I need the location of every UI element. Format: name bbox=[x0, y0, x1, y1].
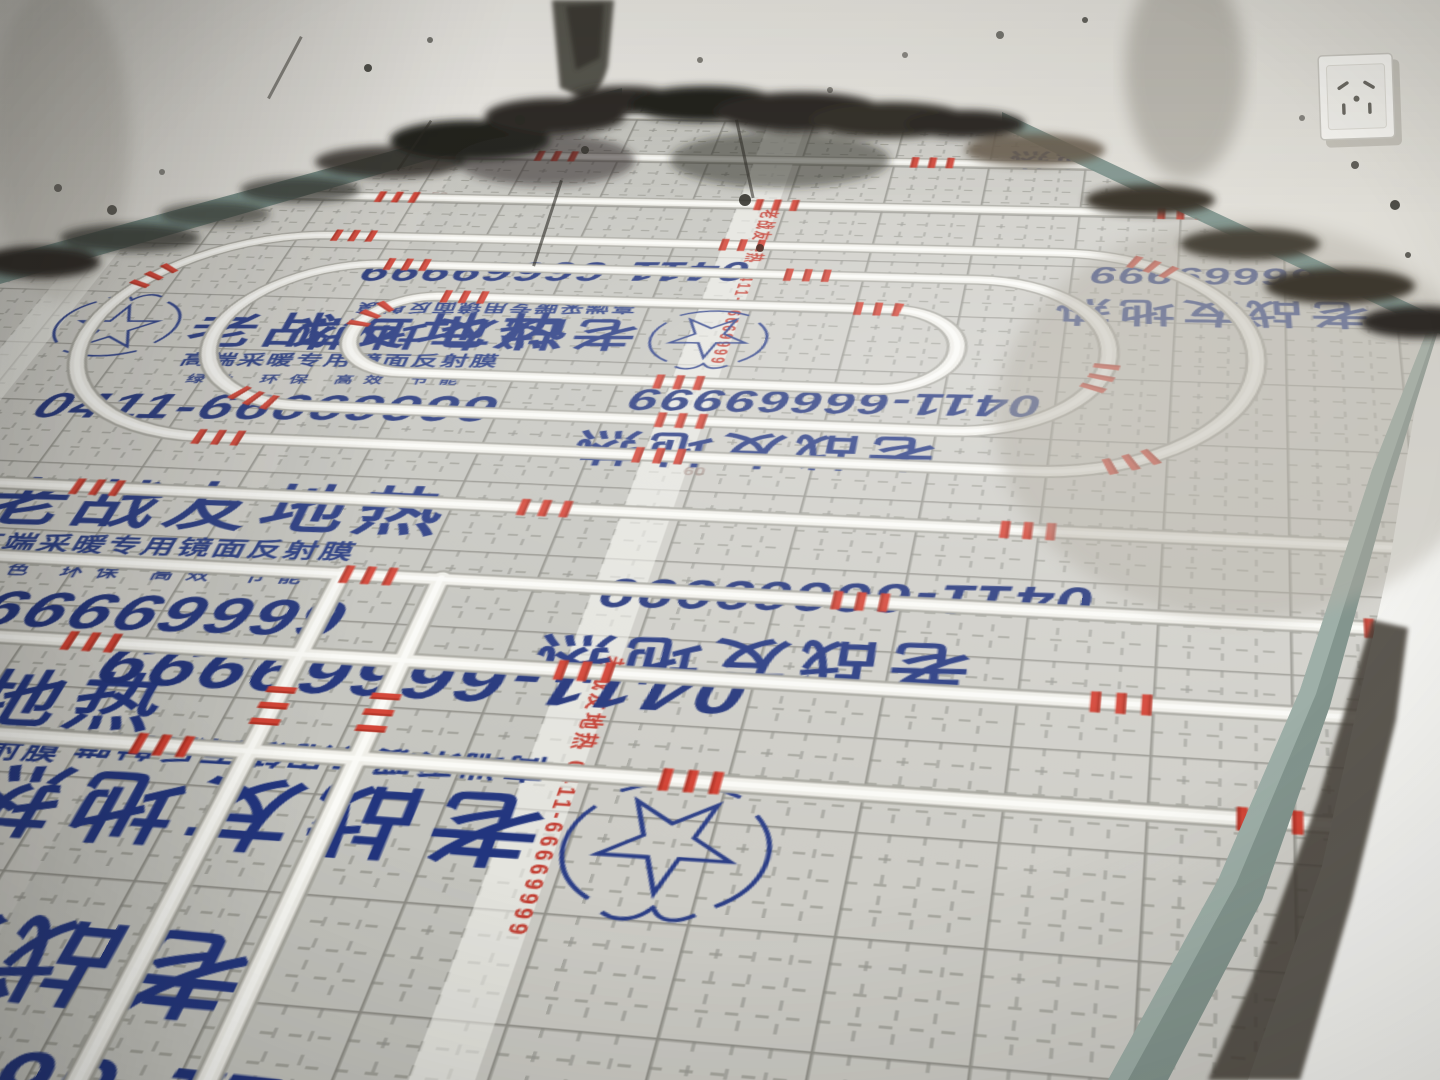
walls bbox=[0, 0, 1440, 1080]
photo-underfloor-heating: 老战友地热 0411-66669999 老战友地热 0411-66669999 … bbox=[0, 0, 1440, 1080]
wall-socket bbox=[1318, 53, 1402, 148]
